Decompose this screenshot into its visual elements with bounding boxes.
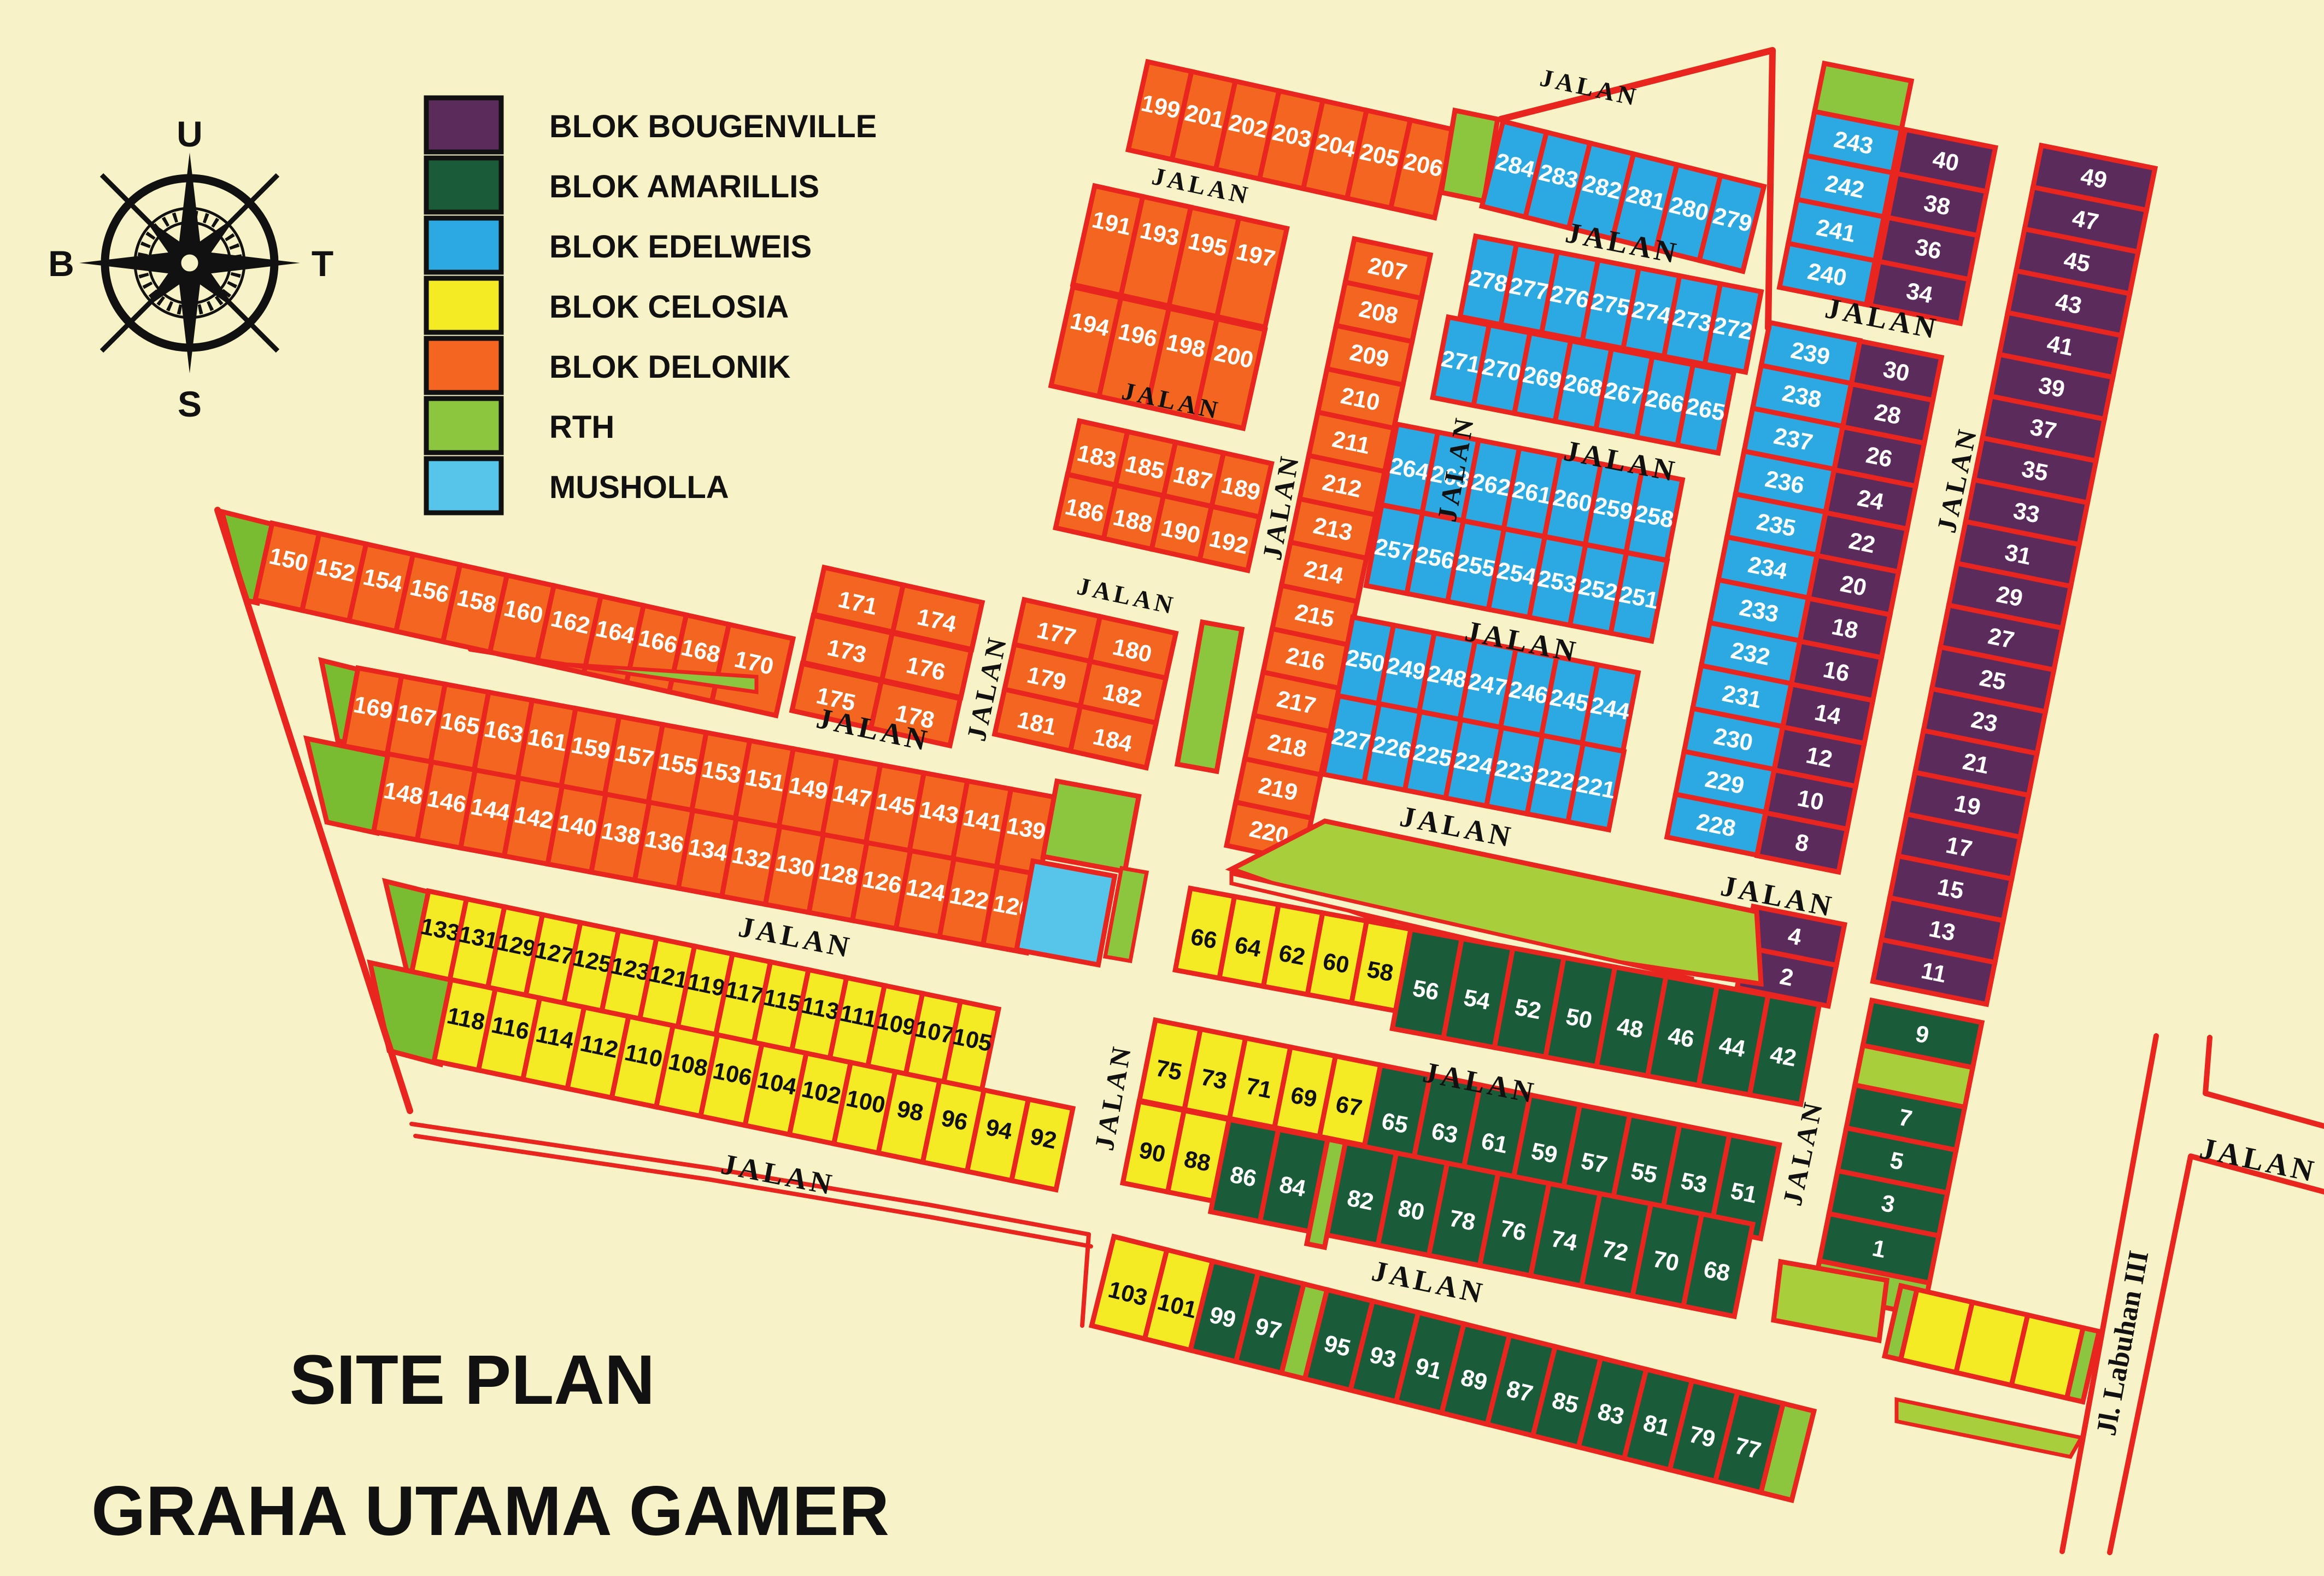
svg-text:40: 40 <box>1930 146 1961 177</box>
svg-text:82: 82 <box>1345 1185 1376 1215</box>
svg-text:58: 58 <box>1365 956 1395 987</box>
svg-text:33: 33 <box>2011 497 2041 529</box>
svg-text:19: 19 <box>1952 790 1982 821</box>
svg-text:29: 29 <box>1994 581 2025 612</box>
svg-text:BLOK BOUGENVILLE: BLOK BOUGENVILLE <box>549 109 877 144</box>
svg-text:28: 28 <box>1873 399 1903 430</box>
svg-text:24: 24 <box>1855 485 1886 515</box>
svg-text:94: 94 <box>983 1114 1014 1145</box>
svg-text:72: 72 <box>1600 1236 1630 1267</box>
svg-text:37: 37 <box>2028 414 2058 445</box>
svg-text:15: 15 <box>1935 874 1966 905</box>
svg-text:GRAHA UTAMA GAMER: GRAHA UTAMA GAMER <box>91 1472 889 1550</box>
svg-text:22: 22 <box>1847 528 1877 558</box>
svg-text:88: 88 <box>1182 1146 1212 1176</box>
svg-text:54: 54 <box>1462 985 1492 1015</box>
svg-text:43: 43 <box>2053 289 2084 320</box>
svg-text:12: 12 <box>1804 742 1834 772</box>
svg-text:65: 65 <box>1380 1108 1410 1139</box>
svg-text:27: 27 <box>1986 623 2016 654</box>
svg-text:42: 42 <box>1768 1041 1799 1072</box>
svg-text:BLOK EDELWEIS: BLOK EDELWEIS <box>549 229 812 265</box>
svg-text:31: 31 <box>2003 540 2033 571</box>
svg-text:20: 20 <box>1838 571 1869 601</box>
svg-text:59: 59 <box>1529 1138 1559 1168</box>
svg-text:70: 70 <box>1651 1246 1681 1276</box>
svg-text:36: 36 <box>1913 234 1944 265</box>
svg-text:14: 14 <box>1812 699 1843 730</box>
svg-text:26: 26 <box>1864 442 1894 472</box>
svg-text:57: 57 <box>1579 1148 1610 1179</box>
svg-text:16: 16 <box>1821 657 1852 687</box>
svg-text:38: 38 <box>1922 190 1952 220</box>
svg-text:73: 73 <box>1199 1064 1229 1094</box>
svg-text:84: 84 <box>1277 1171 1308 1202</box>
svg-text:76: 76 <box>1498 1215 1528 1246</box>
svg-text:10: 10 <box>1795 785 1826 816</box>
svg-text:86: 86 <box>1228 1162 1259 1192</box>
svg-text:53: 53 <box>1679 1168 1709 1198</box>
svg-text:63: 63 <box>1429 1118 1460 1149</box>
svg-text:55: 55 <box>1629 1158 1659 1188</box>
svg-text:S: S <box>178 384 202 424</box>
svg-text:61: 61 <box>1479 1128 1510 1158</box>
svg-text:23: 23 <box>1969 706 1999 737</box>
svg-text:46: 46 <box>1666 1022 1697 1053</box>
svg-text:60: 60 <box>1321 948 1352 979</box>
svg-text:25: 25 <box>1977 665 2008 696</box>
svg-text:18: 18 <box>1829 613 1860 644</box>
svg-text:98: 98 <box>895 1095 926 1127</box>
svg-text:11: 11 <box>1919 957 1949 988</box>
svg-text:68: 68 <box>1701 1256 1732 1287</box>
svg-text:B: B <box>48 243 74 284</box>
svg-text:SITE PLAN: SITE PLAN <box>290 1341 655 1419</box>
svg-text:13: 13 <box>1927 916 1957 947</box>
svg-text:49: 49 <box>2079 163 2109 194</box>
svg-text:74: 74 <box>1548 1226 1579 1256</box>
svg-text:BLOK DELONIK: BLOK DELONIK <box>549 349 791 385</box>
svg-text:47: 47 <box>2070 205 2100 236</box>
svg-text:90: 90 <box>1137 1137 1167 1168</box>
svg-text:51: 51 <box>1728 1177 1759 1208</box>
svg-text:44: 44 <box>1717 1032 1747 1063</box>
svg-text:39: 39 <box>2037 372 2067 403</box>
svg-text:U: U <box>177 114 203 154</box>
svg-text:67: 67 <box>1334 1091 1364 1122</box>
svg-text:17: 17 <box>1944 832 1974 863</box>
svg-text:35: 35 <box>2020 456 2050 487</box>
svg-text:56: 56 <box>1411 975 1441 1006</box>
svg-text:92: 92 <box>1028 1123 1059 1155</box>
svg-text:MUSHOLLA: MUSHOLLA <box>549 470 729 505</box>
svg-text:80: 80 <box>1396 1195 1427 1226</box>
svg-text:BLOK CELOSIA: BLOK CELOSIA <box>549 289 789 325</box>
svg-text:21: 21 <box>1961 748 1991 780</box>
svg-text:66: 66 <box>1189 924 1219 954</box>
svg-text:50: 50 <box>1564 1004 1594 1034</box>
svg-text:45: 45 <box>2062 247 2092 278</box>
svg-text:BLOK AMARILLIS: BLOK AMARILLIS <box>549 169 819 204</box>
svg-text:RTH: RTH <box>549 409 614 445</box>
svg-text:62: 62 <box>1277 940 1307 971</box>
svg-text:69: 69 <box>1288 1082 1319 1112</box>
svg-text:78: 78 <box>1447 1205 1477 1236</box>
svg-text:71: 71 <box>1243 1073 1274 1104</box>
svg-text:34: 34 <box>1904 278 1935 308</box>
svg-text:30: 30 <box>1881 356 1911 386</box>
svg-text:64: 64 <box>1233 932 1263 963</box>
svg-text:48: 48 <box>1615 1013 1645 1044</box>
svg-text:T: T <box>312 243 333 284</box>
svg-text:41: 41 <box>2045 330 2075 361</box>
svg-text:52: 52 <box>1513 994 1544 1024</box>
svg-text:75: 75 <box>1153 1055 1184 1086</box>
svg-text:96: 96 <box>939 1105 970 1136</box>
